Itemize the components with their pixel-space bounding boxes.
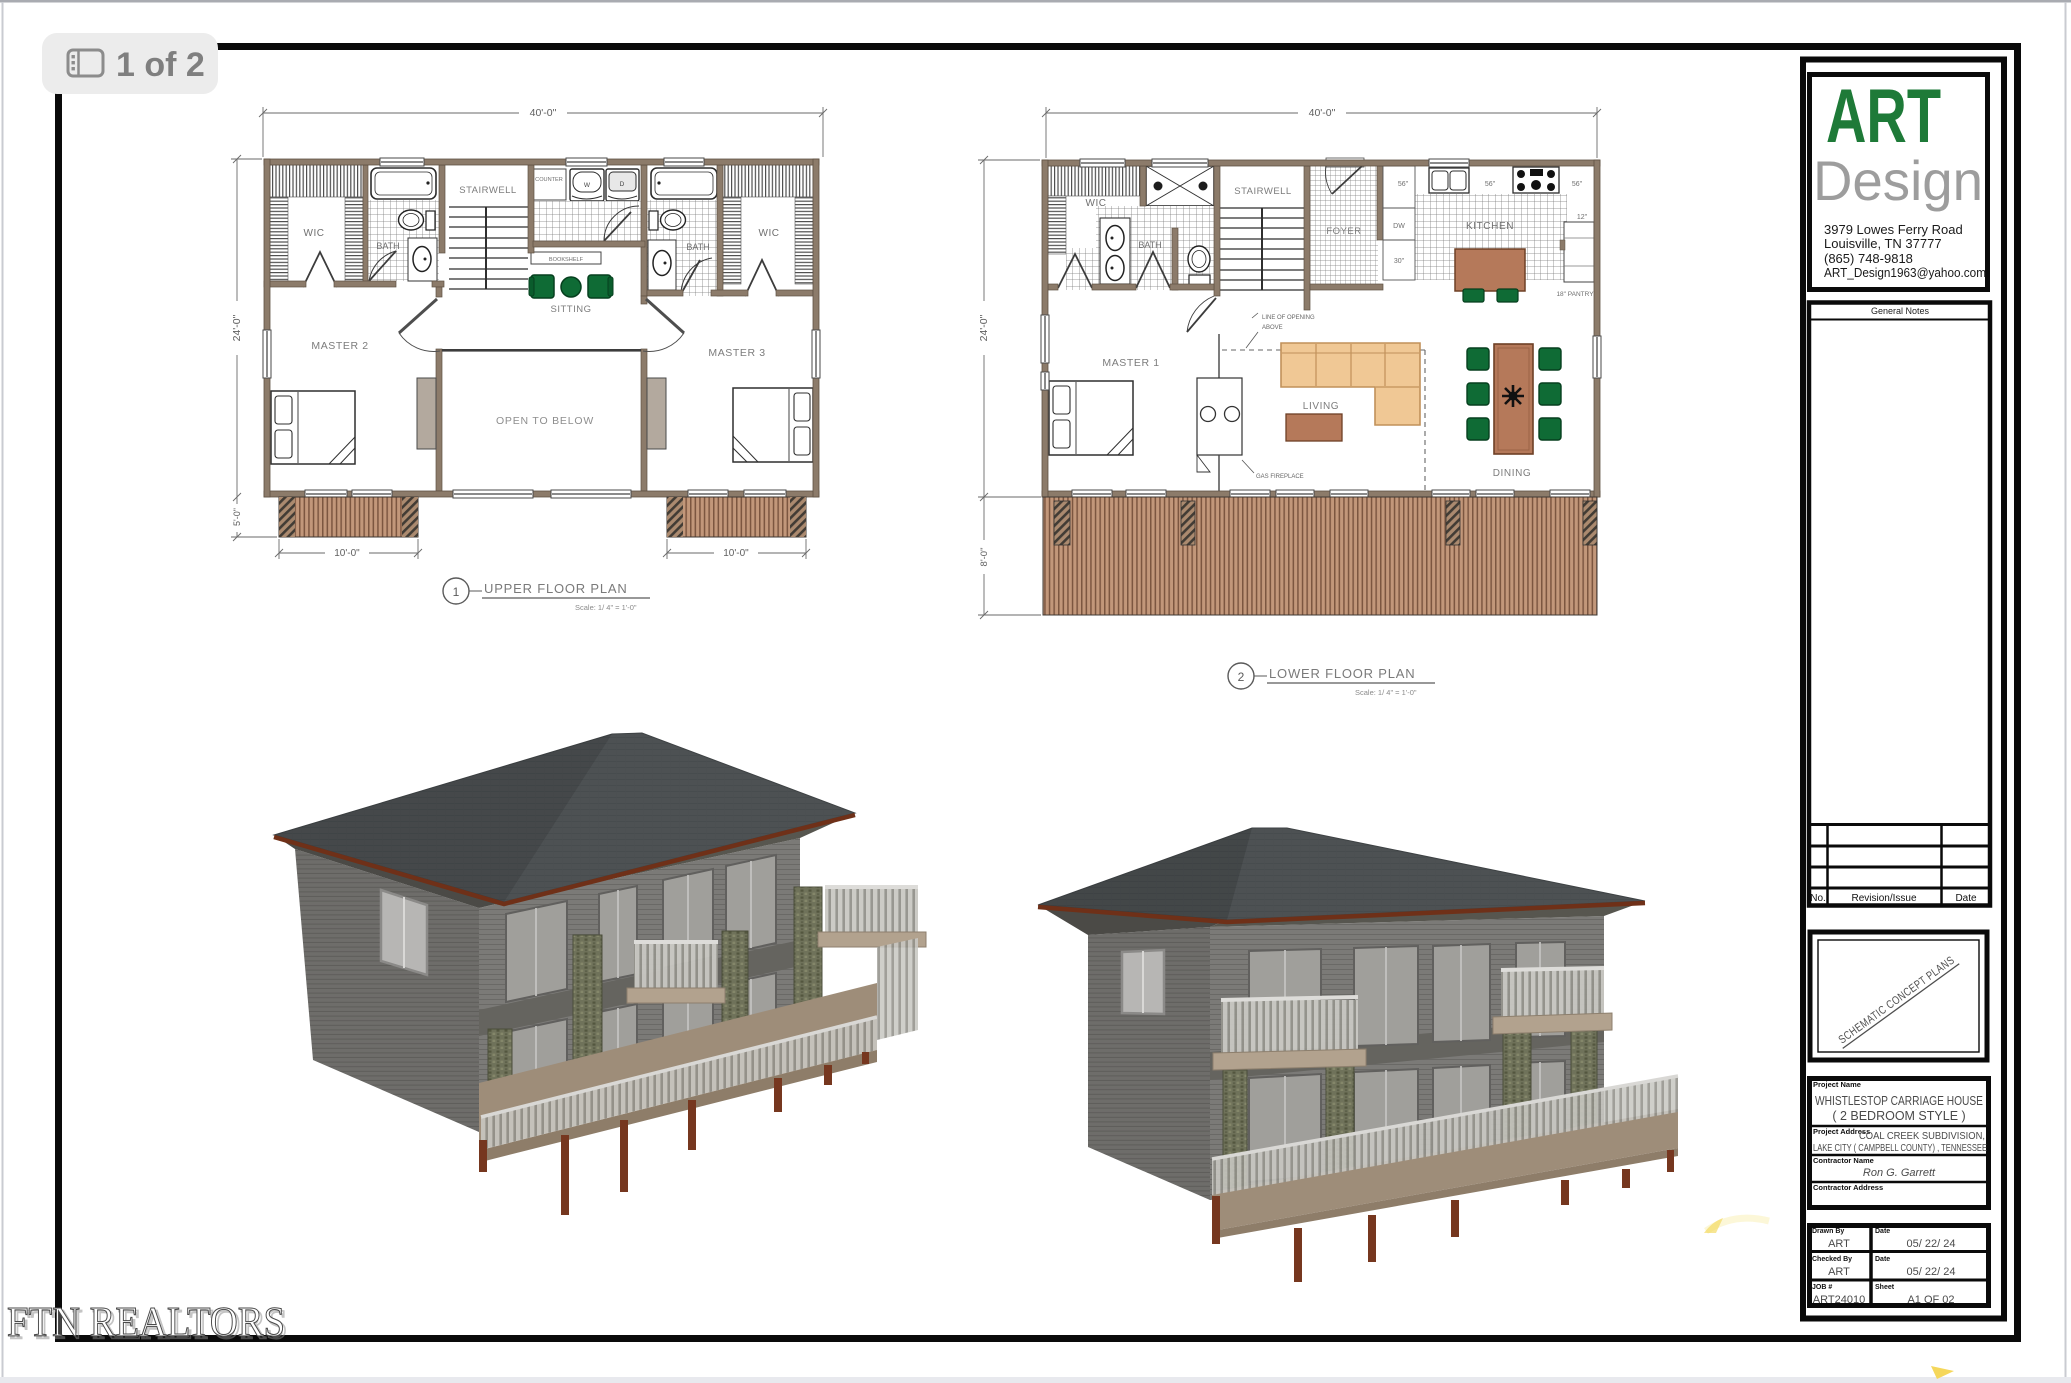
svg-text:STAIRWELL: STAIRWELL: [459, 185, 516, 196]
svg-text:Ron G. Garrett: Ron G. Garrett: [1863, 1167, 1936, 1179]
svg-text:LIVING: LIVING: [1303, 401, 1339, 412]
svg-text:BATH: BATH: [1138, 240, 1161, 250]
svg-text:Date: Date: [1875, 1256, 1890, 1263]
svg-text:COUNTER: COUNTER: [535, 177, 563, 183]
svg-text:A1 OF 02: A1 OF 02: [1907, 1294, 1954, 1306]
svg-text:SITTING: SITTING: [551, 304, 592, 315]
svg-text:Louisville, TN 37777: Louisville, TN 37777: [1824, 236, 1942, 251]
svg-text:ART: ART: [1826, 74, 1941, 159]
svg-text:ART: ART: [1828, 1238, 1850, 1250]
svg-text:Contractor Address: Contractor Address: [1813, 1183, 1883, 1192]
svg-text:DINING: DINING: [1493, 468, 1532, 479]
svg-text:WHISTLESTOP CARRIAGE HOUSE: WHISTLESTOP CARRIAGE HOUSE: [1815, 1094, 1983, 1108]
svg-text:8'-0": 8'-0": [979, 548, 990, 567]
svg-text:COAL CREEK SUBDIVISION,: COAL CREEK SUBDIVISION,: [1859, 1130, 1985, 1142]
svg-text:General Notes: General Notes: [1871, 306, 1930, 316]
svg-text:BOOKSHELF: BOOKSHELF: [549, 257, 584, 263]
svg-text:3979 Lowes Ferry Road: 3979 Lowes Ferry Road: [1824, 222, 1963, 237]
svg-text:BATH: BATH: [686, 242, 709, 252]
svg-text:Checked By: Checked By: [1812, 1256, 1852, 1263]
svg-text:56": 56": [1572, 181, 1583, 188]
svg-text:LINE OF OPENING: LINE OF OPENING: [1262, 315, 1315, 321]
svg-text:UPPER FLOOR PLAN: UPPER FLOOR PLAN: [484, 581, 628, 596]
svg-text:STAIRWELL: STAIRWELL: [1234, 186, 1291, 197]
svg-text:ART_Design1963@yahoo.com: ART_Design1963@yahoo.com: [1824, 265, 1986, 280]
svg-text:56": 56": [1485, 181, 1496, 188]
svg-text:WIC: WIC: [759, 228, 780, 239]
svg-text:FTN REALTORS: FTN REALTORS: [7, 1300, 285, 1346]
svg-text:MASTER 1: MASTER 1: [1102, 357, 1159, 369]
svg-text:ABOVE: ABOVE: [1262, 325, 1283, 331]
svg-text:18" PANTRY: 18" PANTRY: [1556, 291, 1594, 298]
svg-text:Scale: 1/ 4" = 1'-0": Scale: 1/ 4" = 1'-0": [1355, 688, 1417, 697]
svg-text:Scale: 1/ 4" = 1'-0": Scale: 1/ 4" = 1'-0": [575, 603, 637, 612]
svg-text:(865) 748-9818: (865) 748-9818: [1824, 251, 1913, 266]
svg-text:LAKE CITY ( CAMPBELL COUNTY) ,: LAKE CITY ( CAMPBELL COUNTY) , TENNESSEE: [1813, 1142, 1987, 1154]
svg-text:GAS FIREPLACE: GAS FIREPLACE: [1256, 474, 1304, 480]
svg-text:24'-0": 24'-0": [978, 314, 990, 341]
svg-text:ART24010: ART24010: [1813, 1294, 1865, 1306]
svg-text:D: D: [620, 181, 625, 188]
svg-text:MASTER 2: MASTER 2: [311, 340, 368, 352]
svg-text:MASTER 3: MASTER 3: [708, 347, 765, 359]
svg-text:LOWER FLOOR PLAN: LOWER FLOOR PLAN: [1269, 666, 1415, 681]
svg-text:KITCHEN: KITCHEN: [1466, 221, 1514, 232]
svg-text:Revision/Issue: Revision/Issue: [1851, 893, 1916, 904]
svg-text:24'-0": 24'-0": [231, 314, 243, 341]
svg-text:12": 12": [1577, 214, 1588, 221]
svg-text:10'-0": 10'-0": [723, 548, 749, 559]
svg-text:JOB #: JOB #: [1812, 1284, 1832, 1291]
svg-text:ART: ART: [1828, 1266, 1850, 1278]
svg-text:Project Name: Project Name: [1813, 1080, 1861, 1089]
svg-text:2: 2: [1238, 670, 1245, 684]
svg-text:30": 30": [1394, 258, 1405, 265]
svg-text:Sheet: Sheet: [1875, 1284, 1895, 1291]
svg-text:1 of 2: 1 of 2: [116, 46, 205, 84]
svg-text:5'-0": 5'-0": [232, 508, 242, 526]
svg-text:WIC: WIC: [304, 228, 325, 239]
svg-text:1: 1: [453, 585, 460, 599]
svg-text:05/ 22/ 24: 05/ 22/ 24: [1907, 1238, 1956, 1250]
svg-text:FOYER: FOYER: [1326, 226, 1361, 237]
svg-text:DW: DW: [1393, 223, 1405, 230]
svg-text:Date: Date: [1955, 893, 1977, 904]
svg-text:Drawn By: Drawn By: [1812, 1228, 1844, 1235]
svg-text:Contractor Name: Contractor Name: [1813, 1156, 1874, 1165]
svg-text:10'-0": 10'-0": [334, 548, 360, 559]
svg-text:( 2 BEDROOM STYLE ): ( 2 BEDROOM STYLE ): [1832, 1109, 1965, 1123]
svg-text:56": 56": [1398, 181, 1409, 188]
svg-text:W: W: [584, 182, 591, 189]
svg-text:40'-0": 40'-0": [530, 107, 557, 119]
svg-text:05/ 22/ 24: 05/ 22/ 24: [1907, 1266, 1956, 1278]
svg-text:OPEN TO BELOW: OPEN TO BELOW: [496, 415, 594, 427]
svg-text:Design: Design: [1813, 149, 1983, 212]
svg-text:40'-0": 40'-0": [1309, 107, 1336, 119]
svg-text:BATH: BATH: [376, 241, 399, 251]
svg-text:Date: Date: [1875, 1228, 1890, 1235]
svg-text:No.: No.: [1810, 893, 1826, 904]
